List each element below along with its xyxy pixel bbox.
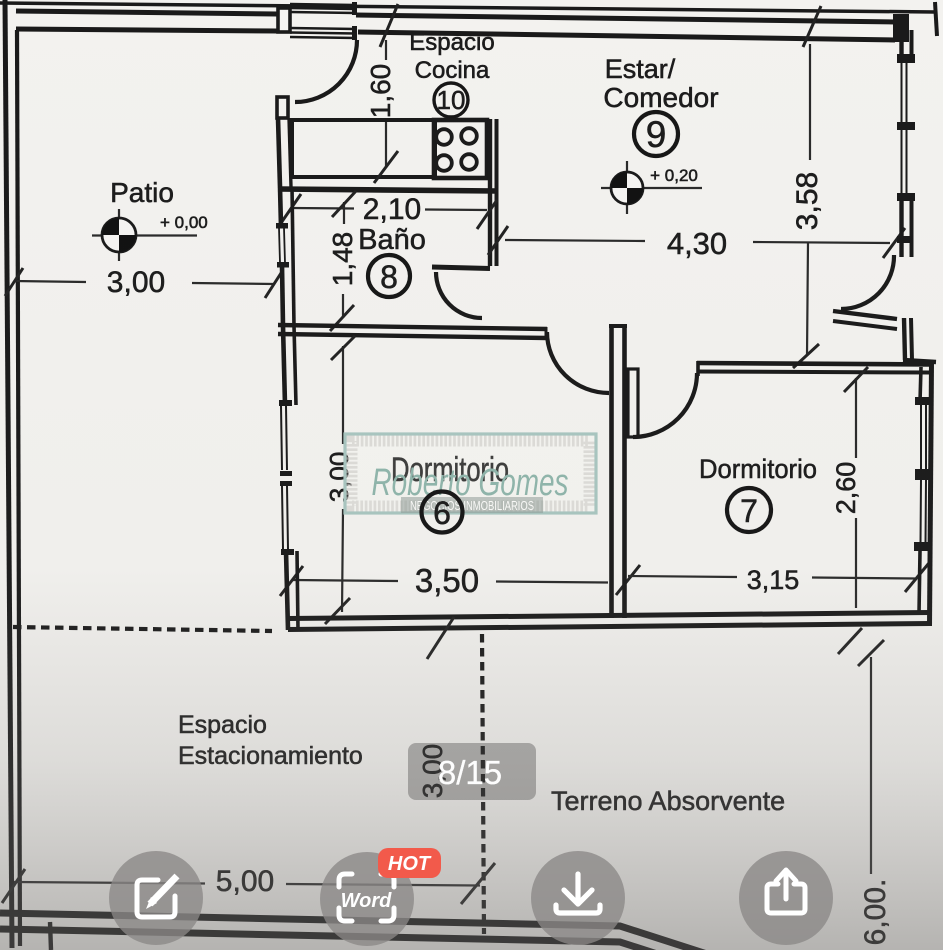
svg-text:8/15: 8/15 [438, 754, 502, 791]
svg-text:Word: Word [341, 890, 393, 912]
svg-text:HOT: HOT [388, 853, 432, 875]
